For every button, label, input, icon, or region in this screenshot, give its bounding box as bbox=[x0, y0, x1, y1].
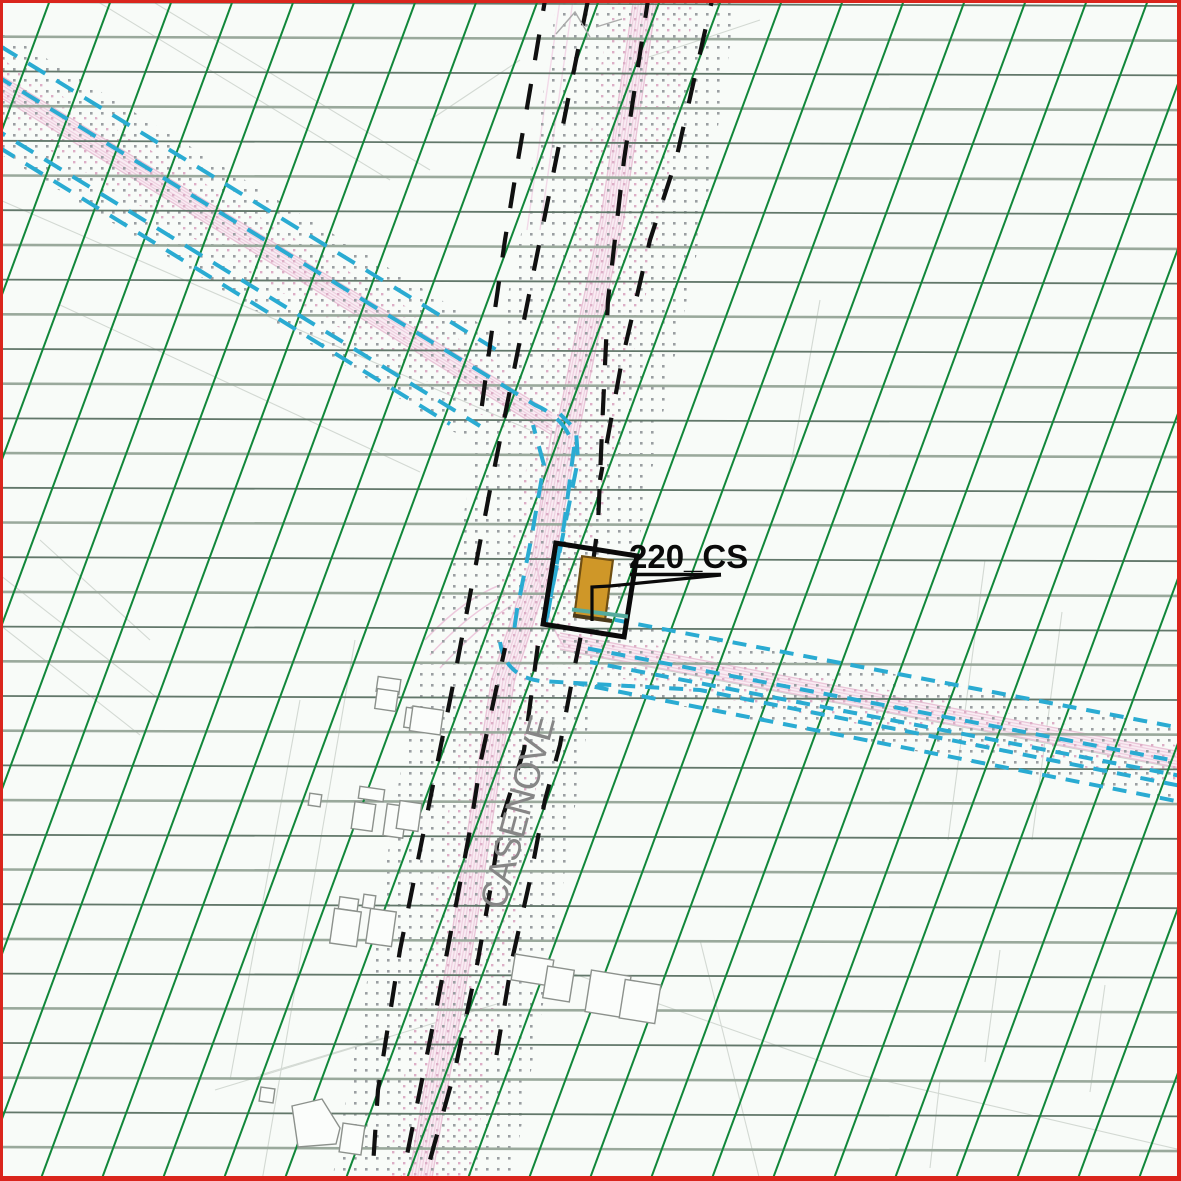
svg-text:220_CS: 220_CS bbox=[629, 538, 748, 575]
